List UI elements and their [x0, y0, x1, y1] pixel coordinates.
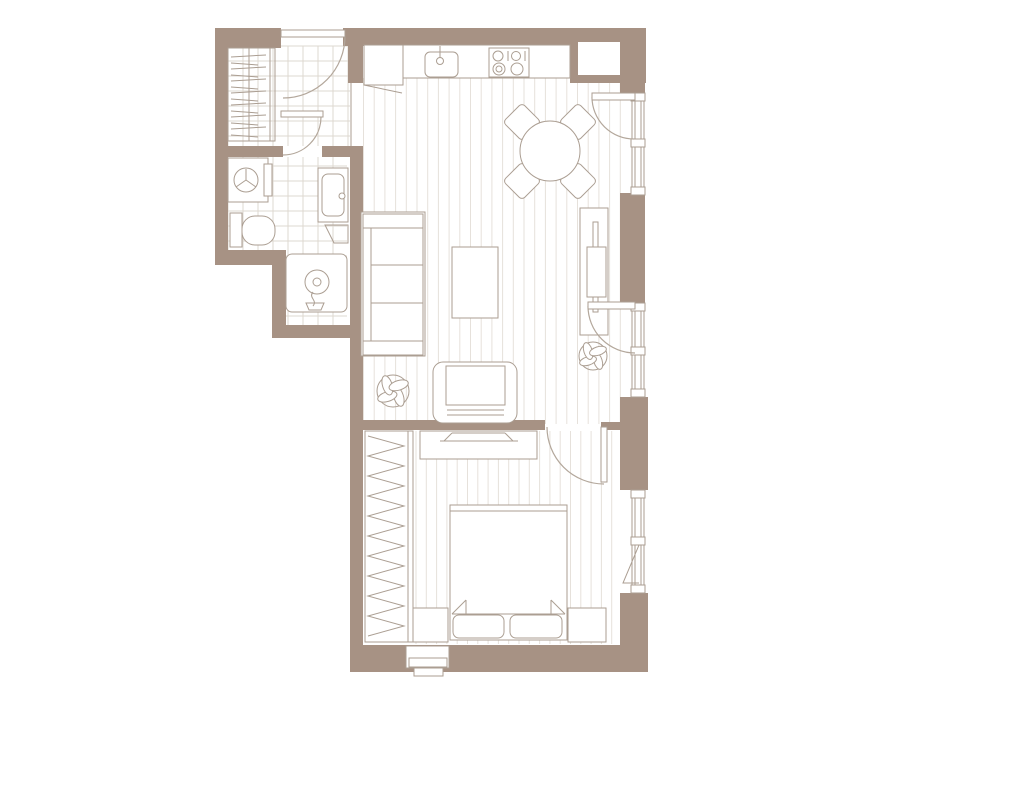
window-living-middle-mullion-2 — [631, 389, 645, 397]
wall-top-middle — [343, 28, 570, 46]
shaft-niche — [578, 42, 620, 75]
washing-machine-panel — [264, 164, 272, 196]
wall-hall-bath-west — [215, 146, 283, 157]
window-bedroom-mullion-1 — [631, 537, 645, 545]
door-entry-swing-arc — [283, 36, 345, 98]
window-bedroom-mullion-2 — [631, 585, 645, 593]
door-bathroom-leaf — [281, 111, 323, 117]
pillow-right — [510, 615, 562, 638]
wall-right-pier-1 — [620, 193, 645, 303]
sofa-back — [363, 228, 371, 341]
wall-bath-step — [272, 250, 286, 338]
door-balcony-top-swing-arc — [592, 97, 634, 139]
closet-hall — [228, 48, 275, 141]
sofa-seat-2 — [371, 265, 423, 303]
burner-2 — [512, 52, 521, 61]
door-balcony-top-leaf — [592, 93, 635, 100]
toilet-bowl — [242, 216, 275, 245]
ac-unit-low — [414, 668, 443, 676]
shower-drain-center — [313, 278, 321, 286]
pillow-left — [453, 615, 504, 638]
wall-bath-south-left — [215, 250, 278, 265]
kitchen-counter-end — [364, 45, 403, 85]
door-entry-leaf — [281, 30, 345, 37]
plant-living-room — [376, 374, 409, 407]
wall-right-pier-2 — [620, 397, 648, 490]
window-living-middle-mullion-1 — [631, 347, 645, 355]
burner-1 — [493, 51, 503, 61]
burner-3-inner — [496, 66, 502, 72]
floor-plan-page — [0, 0, 1011, 800]
door-bedroom-leaf — [601, 427, 607, 482]
wall-top-left — [215, 28, 281, 48]
vanity-faucet — [339, 193, 345, 199]
door-bedroom-swing-arc — [547, 427, 604, 484]
armchair-seat — [446, 366, 505, 405]
sofa-seat-3 — [371, 303, 423, 341]
coffee-table — [452, 247, 498, 318]
sofa-seat-1 — [371, 228, 423, 265]
kitchen-faucet — [437, 58, 444, 65]
plant-by-window — [579, 342, 608, 371]
plant-by-window-part — [588, 344, 607, 357]
toilet-tank — [230, 213, 242, 247]
counter-diagonal — [364, 85, 402, 93]
sofa-armrest-bottom — [363, 341, 423, 355]
tv-dresser — [420, 431, 537, 459]
wall-bath-south — [272, 325, 352, 338]
window-living-top-mullion-1 — [631, 139, 645, 147]
window-living-top-mullion-2 — [631, 187, 645, 195]
door-balcony-middle-leaf — [588, 302, 635, 309]
wall-bottom — [352, 645, 648, 672]
floor-plan — [0, 0, 1011, 800]
vanity-shelf — [325, 225, 348, 243]
wall-kitchen-stub — [348, 46, 363, 83]
console-desk-inner — [587, 247, 606, 297]
dining-table — [520, 121, 580, 181]
window-bedroom-mullion-0 — [631, 490, 645, 498]
ac-unit-mid — [409, 658, 447, 667]
nightstand-right — [568, 608, 606, 642]
nightstand-left — [412, 608, 448, 642]
sofa-armrest-top — [363, 214, 423, 228]
burner-4 — [511, 63, 523, 75]
floor-hallway — [228, 46, 350, 146]
